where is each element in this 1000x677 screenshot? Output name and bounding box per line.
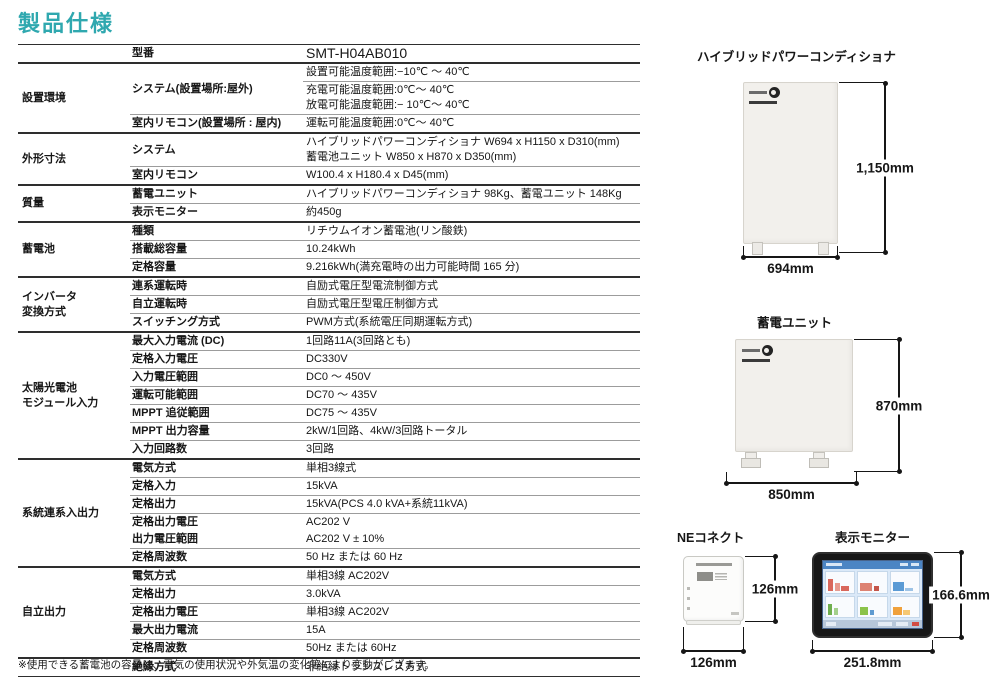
monitor-screen-tiles xyxy=(823,569,922,620)
table-row: 定格入力電圧 DC330V xyxy=(130,350,640,368)
spec-group-weight: 質量 蓄電ユニット ハイブリッドパワーコンディショナ 98Kg、蓄電ユニット 1… xyxy=(18,184,640,221)
spec-category: 蓄電池 xyxy=(18,223,130,276)
spec-attr: 入力電圧範囲 xyxy=(130,369,303,386)
spec-attr: 電気方式 xyxy=(130,568,303,585)
spec-table: 型番 SMT-H04AB010 設置環境 システム(設置場所:屋外) 設置可能温… xyxy=(18,44,640,677)
spec-attr: 自立運転時 xyxy=(130,296,303,313)
spec-attr: 定格出力電圧 xyxy=(130,604,303,621)
monitor-tile-blue-chart xyxy=(890,571,920,594)
spec-value: ハイブリッドパワーコンディショナ 98Kg、蓄電ユニット 148Kg xyxy=(303,186,640,203)
spec-attr: 定格周波数 xyxy=(130,640,303,657)
monitor-tile-red-chart xyxy=(825,571,855,594)
product-foot xyxy=(752,242,763,255)
spec-attr: 最大入力電流 (DC) xyxy=(130,333,303,350)
spec-category: 系統連系入出力 xyxy=(18,460,130,566)
spec-value: 単相3線式 xyxy=(303,460,640,477)
table-row: 定格容量 9.216kWh(満充電時の出力可能時間 165 分) xyxy=(130,258,640,276)
table-row: 電気方式 単相3線 AC202V xyxy=(130,568,640,585)
table-row: 最大入力電流 (DC) 1回路11A(3回路とも) xyxy=(130,333,640,350)
table-row: 出力電圧範囲 AC202 V ± 10% xyxy=(130,531,640,548)
table-row: 種類 リチウムイオン蓄電池(リン酸鉄) xyxy=(130,223,640,240)
monitor-tile-orange-chart xyxy=(890,596,920,619)
product-image-display-monitor xyxy=(812,552,933,638)
table-row: 入力電圧範囲 DC0 〜 450V xyxy=(130,368,640,386)
spec-value: 9.216kWh(満充電時の出力可能時間 165 分) xyxy=(303,259,640,276)
spec-attr: 搭載総容量 xyxy=(130,241,303,258)
spec-attr: 連系運転時 xyxy=(130,278,303,295)
spec-group-standalone-output: 自立出力 電気方式 単相3線 AC202V 定格出力 3.0kVA 定格出力電圧… xyxy=(18,566,640,657)
spec-value: 1回路11A(3回路とも) xyxy=(303,333,640,350)
extension-line xyxy=(745,621,775,622)
spec-value: 運転可能温度範囲:0℃〜 40℃ xyxy=(303,115,640,132)
table-row: 蓄電ユニット ハイブリッドパワーコンディショナ 98Kg、蓄電ユニット 148K… xyxy=(130,186,640,203)
table-row: 連系運転時 自励式電圧型電流制御方式 xyxy=(130,278,640,295)
status-led xyxy=(687,597,690,600)
spec-attr: 室内リモコン(設置場所 : 屋内) xyxy=(130,115,303,132)
spec-attr: 電気方式 xyxy=(130,460,303,477)
spec-value: 15kVA(PCS 4.0 kVA+系統11kVA) xyxy=(303,496,640,513)
device-label-text xyxy=(696,563,732,566)
spec-value: 3.0kVA xyxy=(303,586,640,603)
table-row: 運転可能範囲 DC70 〜 435V xyxy=(130,386,640,404)
spec-value: 10.24kWh xyxy=(303,241,640,258)
spec-attr: 定格容量 xyxy=(130,259,303,276)
spec-attr: 型番 xyxy=(130,45,303,62)
spec-group-battery: 蓄電池 種類 リチウムイオン蓄電池(リン酸鉄) 搭載総容量 10.24kWh 定… xyxy=(18,221,640,276)
height-dimension-label: 1,150mm xyxy=(853,160,917,177)
table-row: 室内リモコン(設置場所 : 屋内) 運転可能温度範囲:0℃〜 40℃ xyxy=(130,114,640,132)
extension-line xyxy=(839,82,885,83)
page-title: 製品仕様 xyxy=(18,6,114,38)
power-button-icon xyxy=(912,622,919,626)
spec-value: DC75 〜 435V xyxy=(303,405,640,422)
product-image-hybrid-power-conditioner xyxy=(743,82,838,244)
spec-value: 50Hz または 60Hz xyxy=(303,640,640,657)
spec-attr: 最大出力電流 xyxy=(130,622,303,639)
status-led xyxy=(687,607,690,610)
spec-value: DC70 〜 435V xyxy=(303,387,640,404)
spec-value: リチウムイオン蓄電池(リン酸鉄) xyxy=(303,223,640,240)
table-row: 自立運転時 自励式電圧型電圧制御方式 xyxy=(130,295,640,313)
spec-attr: 定格入力 xyxy=(130,478,303,495)
spec-attr: MPPT 追従範囲 xyxy=(130,405,303,422)
spec-category xyxy=(18,45,130,62)
spec-value: 3回路 xyxy=(303,441,640,458)
table-row: 定格出力電圧 AC202 V xyxy=(130,513,640,531)
brand-logo-icon xyxy=(769,87,780,98)
spec-attr: システム(設置場所:屋外) xyxy=(130,64,303,114)
spec-attr: システム xyxy=(130,134,303,166)
monitor-screen xyxy=(822,560,923,629)
spec-value: 2kW/1回路、4kW/3回路トータル xyxy=(303,423,640,440)
spec-group-dimensions: 外形寸法 システム ハイブリッドパワーコンディショナ W694 x H1150 … xyxy=(18,132,640,184)
product-heading-hybrid-power-conditioner: ハイブリッドパワーコンディショナ xyxy=(697,46,896,65)
spec-value: 設置可能温度範囲:−10℃ 〜 40℃ xyxy=(303,64,640,82)
table-row: 最大出力電流 15A xyxy=(130,621,640,639)
monitor-tile-green-bars xyxy=(825,596,855,619)
brand-logo-icon xyxy=(762,345,773,356)
monitor-tile-green-chart xyxy=(857,596,887,619)
height-dimension-label: 166.6mm xyxy=(929,587,993,604)
device-base xyxy=(686,620,741,625)
table-row: MPPT 出力容量 2kW/1回路、4kW/3回路トータル xyxy=(130,422,640,440)
extension-line xyxy=(683,627,684,651)
spec-value: PWM方式(系統電圧同期運転方式) xyxy=(303,314,640,331)
extension-line xyxy=(934,637,961,638)
spec-value: W100.4 x H180.4 x D45(mm) xyxy=(303,167,640,184)
spec-group-grid-io: 系統連系入出力 電気方式 単相3線式 定格入力 15kVA 定格出力 15kVA… xyxy=(18,458,640,566)
table-row: 型番 SMT-H04AB010 xyxy=(130,45,640,62)
spec-category: インバータ 変換方式 xyxy=(18,278,130,331)
spec-value: 15kVA xyxy=(303,478,640,495)
table-row: 定格出力電圧 単相3線 AC202V xyxy=(130,603,640,621)
spec-category: 自立出力 xyxy=(18,568,130,657)
footnote: ※使用できる蓄電池の容量は、電気の使用状況や外気温の変化等により変動がござます。 xyxy=(18,657,435,672)
table-row: 定格周波数 50 Hz または 60 Hz xyxy=(130,548,640,566)
spec-attr: 出力電圧範囲 xyxy=(130,531,303,548)
product-heading-display-monitor: 表示モニター xyxy=(835,527,910,546)
table-row: 室内リモコン W100.4 x H180.4 x D45(mm) xyxy=(130,166,640,184)
monitor-tile-salmon-chart xyxy=(857,571,887,594)
spec-attr: 種類 xyxy=(130,223,303,240)
device-logo xyxy=(697,572,713,581)
product-heading-ne-connect: NEコネクト xyxy=(677,527,744,546)
table-row: スイッチング方式 PWM方式(系統電圧同期運転方式) xyxy=(130,313,640,331)
spec-value: 約450g xyxy=(303,204,640,221)
extension-line xyxy=(854,339,899,340)
table-row: MPPT 追従範囲 DC75 〜 435V xyxy=(130,404,640,422)
table-row: システム(設置場所:屋外) 設置可能温度範囲:−10℃ 〜 40℃ 充電可能温度… xyxy=(130,64,640,114)
spec-group-pv-input: 太陽光電池 モジュール入力 最大入力電流 (DC) 1回路11A(3回路とも) … xyxy=(18,331,640,458)
extension-line xyxy=(743,627,744,651)
spec-value: 自励式電圧型電流制御方式 xyxy=(303,278,640,295)
extension-line xyxy=(745,556,775,557)
spec-attr: 定格周波数 xyxy=(130,549,303,566)
spec-attr: 入力回路数 xyxy=(130,441,303,458)
spec-attr: 蓄電ユニット xyxy=(130,186,303,203)
spec-attr: 室内リモコン xyxy=(130,167,303,184)
spec-group-environment: 設置環境 システム(設置場所:屋外) 設置可能温度範囲:−10℃ 〜 40℃ 充… xyxy=(18,62,640,132)
spec-sheet-page: 製品仕様 型番 SMT-H04AB010 設置環境 システム(設置場所:屋外) … xyxy=(0,0,1000,677)
spec-value: AC202 V ± 10% xyxy=(303,531,640,548)
extension-line xyxy=(854,471,899,472)
width-dimension-label: 251.8mm xyxy=(844,655,902,670)
monitor-screen-footer xyxy=(823,620,922,628)
table-row: 定格周波数 50Hz または 60Hz xyxy=(130,639,640,657)
table-row: 定格出力 3.0kVA xyxy=(130,585,640,603)
height-dimension-label: 126mm xyxy=(749,581,802,598)
table-row: 表示モニター 約450g xyxy=(130,203,640,221)
extension-line xyxy=(839,252,885,253)
table-row: 入力回路数 3回路 xyxy=(130,440,640,458)
product-foot xyxy=(741,452,761,468)
table-row: 電気方式 単相3線式 xyxy=(130,460,640,477)
monitor-screen-header xyxy=(823,561,922,569)
brand-logo xyxy=(742,345,773,362)
spec-value: AC202 V xyxy=(303,514,640,531)
spec-attr: 運転可能範囲 xyxy=(130,387,303,404)
device-slot xyxy=(731,612,739,615)
table-row: 定格入力 15kVA xyxy=(130,477,640,495)
table-row: 搭載総容量 10.24kWh xyxy=(130,240,640,258)
spec-category: 設置環境 xyxy=(18,64,130,132)
width-dimension-label: 850mm xyxy=(768,487,815,502)
spec-category: 外形寸法 xyxy=(18,134,130,184)
spec-value: 50 Hz または 60 Hz xyxy=(303,549,640,566)
spec-value: 15A xyxy=(303,622,640,639)
spec-value: 単相3線 AC202V xyxy=(303,604,640,621)
table-row: 定格出力 15kVA(PCS 4.0 kVA+系統11kVA) xyxy=(130,495,640,513)
spec-attr: 定格出力 xyxy=(130,496,303,513)
spec-value: DC0 〜 450V xyxy=(303,369,640,386)
spec-value: DC330V xyxy=(303,351,640,368)
spec-attr: 定格出力電圧 xyxy=(130,514,303,531)
spec-value: 充電可能温度範囲:0℃〜 40℃ 放電可能温度範囲:− 10℃〜 40℃ xyxy=(303,82,640,114)
spec-group-inverter: インバータ 変換方式 連系運転時 自励式電圧型電流制御方式 自立運転時 自励式電… xyxy=(18,276,640,331)
spec-value: ハイブリッドパワーコンディショナ W694 x H1150 x D310(mm)… xyxy=(303,134,640,166)
spec-value: SMT-H04AB010 xyxy=(303,45,640,62)
spec-category: 質量 xyxy=(18,186,130,221)
spec-attr: 表示モニター xyxy=(130,204,303,221)
spec-group-model: 型番 SMT-H04AB010 xyxy=(18,45,640,62)
spec-attr: 定格入力電圧 xyxy=(130,351,303,368)
product-image-battery-unit xyxy=(735,339,853,452)
spec-attr: MPPT 出力容量 xyxy=(130,423,303,440)
width-dimension-label: 126mm xyxy=(690,655,737,670)
spec-value: 単相3線 AC202V xyxy=(303,568,640,585)
product-image-ne-connect xyxy=(683,556,744,622)
status-led xyxy=(687,587,690,590)
spec-attr: 定格出力 xyxy=(130,586,303,603)
table-row: システム ハイブリッドパワーコンディショナ W694 x H1150 x D31… xyxy=(130,134,640,166)
height-dimension-label: 870mm xyxy=(873,397,926,414)
product-foot xyxy=(809,452,829,468)
spec-category: 太陽光電池 モジュール入力 xyxy=(18,333,130,458)
width-dimension-label: 694mm xyxy=(767,261,814,276)
product-foot xyxy=(818,242,829,255)
brand-logo xyxy=(749,87,780,104)
spec-value: 自励式電圧型電圧制御方式 xyxy=(303,296,640,313)
product-heading-battery-unit: 蓄電ユニット xyxy=(757,312,832,331)
spec-attr: スイッチング方式 xyxy=(130,314,303,331)
extension-line xyxy=(934,552,961,553)
